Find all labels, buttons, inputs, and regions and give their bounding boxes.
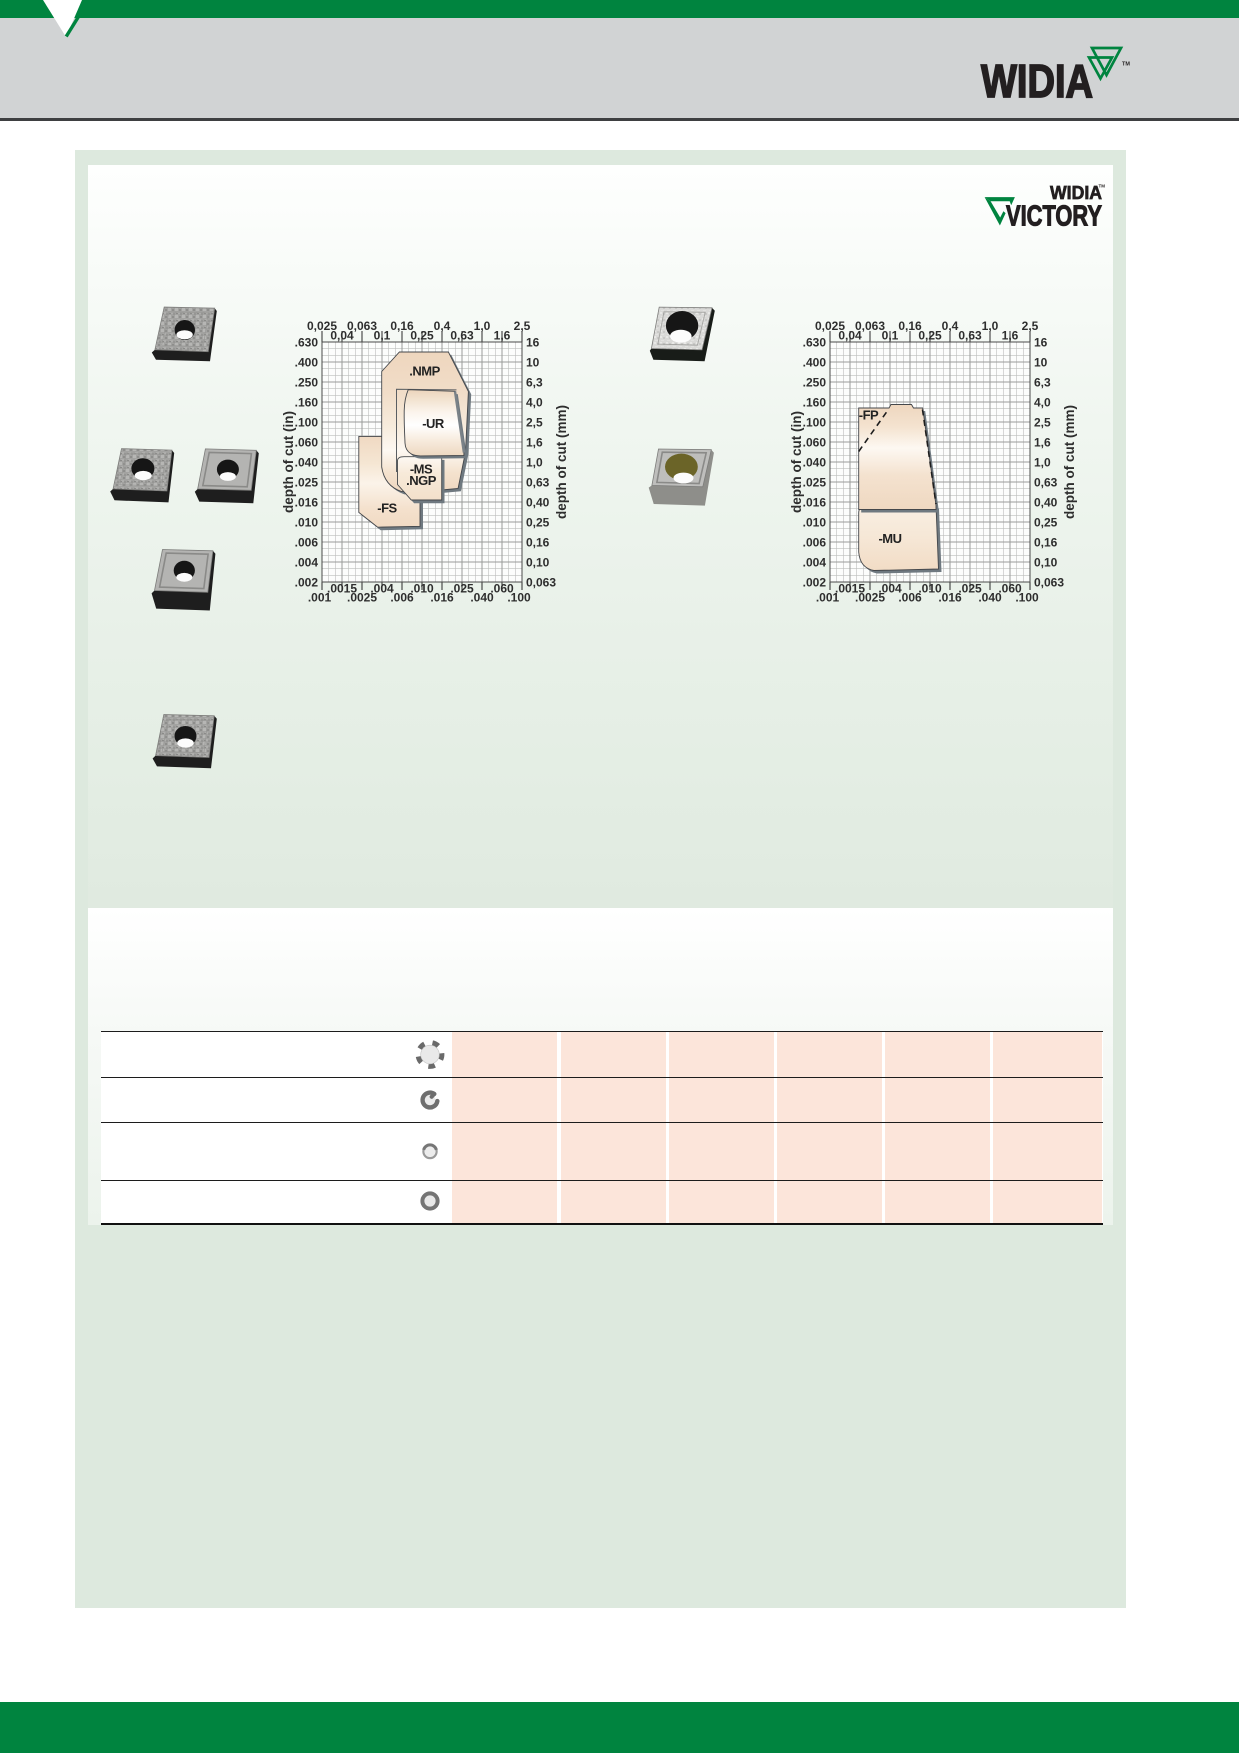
svg-text:.100: .100 (803, 416, 827, 430)
svg-text:WIDIA: WIDIA (981, 55, 1093, 107)
svg-text:.060: .060 (803, 436, 827, 450)
svg-text:.160: .160 (803, 396, 827, 410)
svg-text:.006: .006 (898, 591, 922, 605)
svg-text:4,0: 4,0 (1034, 396, 1051, 410)
svg-text:.025: .025 (803, 476, 827, 490)
svg-text:0,04: 0,04 (838, 329, 862, 343)
svg-text:.016: .016 (938, 591, 962, 605)
svg-text:0,10: 0,10 (1034, 556, 1058, 570)
svg-text:16: 16 (1034, 336, 1048, 350)
svg-text:.006: .006 (803, 536, 827, 550)
svg-text:0,40: 0,40 (1034, 496, 1058, 510)
svg-text:TM: TM (1122, 62, 1130, 68)
svg-text:1,0: 1,0 (982, 319, 999, 333)
svg-text:0,1: 0,1 (882, 329, 899, 343)
svg-text:0,25: 0,25 (918, 329, 942, 343)
svg-text:TM: TM (1099, 184, 1106, 189)
svg-text:.004: .004 (803, 556, 827, 570)
svg-text:.630: .630 (803, 336, 827, 350)
svg-text:.010: .010 (803, 516, 827, 530)
svg-text:.040: .040 (978, 591, 1002, 605)
svg-text:.040: .040 (803, 456, 827, 470)
svg-text:-FP: -FP (859, 408, 879, 423)
svg-text:0,63: 0,63 (958, 329, 982, 343)
svg-text:0,063: 0,063 (1034, 576, 1064, 590)
svg-text:depth of cut (in): depth of cut (in) (789, 411, 804, 513)
svg-text:0,25: 0,25 (1034, 516, 1058, 530)
svg-text:1,6: 1,6 (1034, 436, 1051, 450)
svg-text:.400: .400 (803, 356, 827, 370)
svg-text:2,5: 2,5 (1034, 416, 1051, 430)
svg-text:VICTORY: VICTORY (1006, 201, 1102, 233)
svg-text:.250: .250 (803, 376, 827, 390)
svg-text:.100: .100 (1015, 591, 1039, 605)
svg-text:.016: .016 (803, 496, 827, 510)
svg-text:0,4: 0,4 (942, 319, 959, 333)
svg-text:0,16: 0,16 (1034, 536, 1058, 550)
svg-text:0,63: 0,63 (1034, 476, 1058, 490)
svg-text:-MU: -MU (878, 531, 901, 546)
svg-text:6,3: 6,3 (1034, 376, 1051, 390)
svg-text:1,6: 1,6 (1002, 329, 1019, 343)
svg-text:.001: .001 (816, 591, 840, 605)
svg-text:1,0: 1,0 (1034, 456, 1051, 470)
svg-text:.0025: .0025 (855, 591, 885, 605)
svg-text:.002: .002 (803, 576, 827, 590)
svg-text:10: 10 (1034, 356, 1048, 370)
svg-text:depth of cut (mm): depth of cut (mm) (1062, 405, 1077, 519)
svg-text:2,5: 2,5 (1022, 319, 1039, 333)
